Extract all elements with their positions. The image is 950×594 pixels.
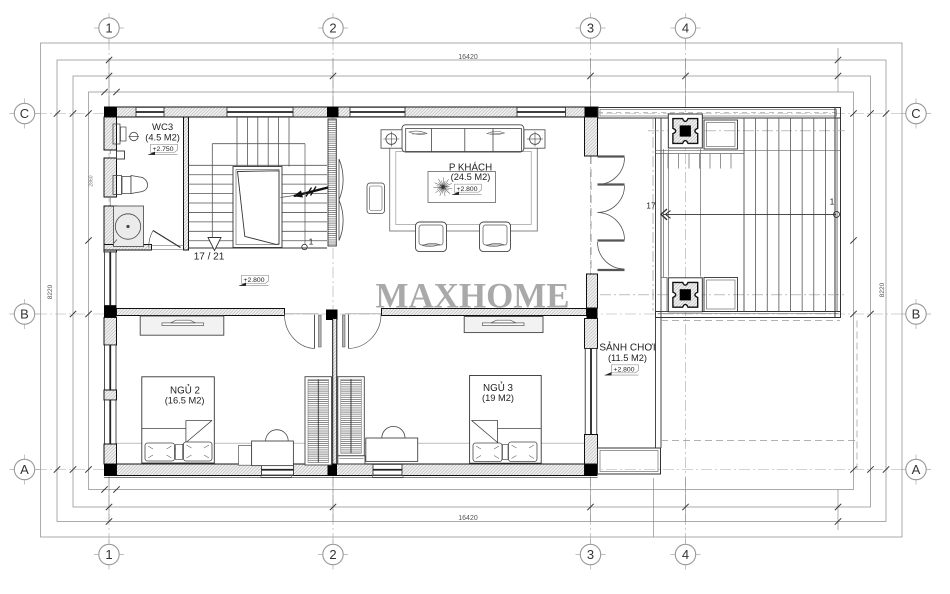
svg-text:(11.5 M2): (11.5 M2) [608,353,647,363]
svg-text:1: 1 [309,237,314,247]
svg-text:A: A [20,462,29,477]
svg-text:WC3: WC3 [152,122,173,133]
svg-text:+2.750: +2.750 [153,146,174,153]
svg-text:B: B [20,307,29,322]
svg-text:8220: 8220 [879,282,886,297]
svg-text:2860: 2860 [89,175,95,186]
svg-text:2: 2 [329,21,336,36]
svg-text:3: 3 [587,547,594,562]
svg-text:SẢNH CHƠI: SẢNH CHƠI [599,341,655,354]
svg-text:(19 M2): (19 M2) [482,393,514,403]
svg-text:17: 17 [646,201,656,211]
svg-text:+2.800: +2.800 [614,367,635,374]
svg-text:1: 1 [105,547,112,562]
svg-text:1: 1 [105,21,112,36]
svg-text:+2.800: +2.800 [457,186,478,193]
svg-text:3: 3 [587,21,594,36]
svg-text:C: C [20,106,29,121]
svg-text:(16.5 M2): (16.5 M2) [165,396,205,406]
svg-text:4: 4 [682,21,689,36]
svg-text:B: B [912,307,921,322]
svg-text:2: 2 [329,547,336,562]
svg-text:16420: 16420 [458,515,478,522]
svg-text:1: 1 [830,197,835,207]
svg-text:(4.5 M2): (4.5 M2) [145,133,180,143]
svg-text:17 / 21: 17 / 21 [194,252,225,263]
svg-text:16420: 16420 [458,54,478,61]
svg-text:(24.5 M2): (24.5 M2) [451,172,491,182]
svg-text:A: A [912,462,921,477]
svg-text:C: C [911,106,920,121]
svg-text:4: 4 [682,547,689,562]
svg-text:+2.800: +2.800 [244,277,265,284]
svg-text:8220: 8220 [47,284,54,299]
